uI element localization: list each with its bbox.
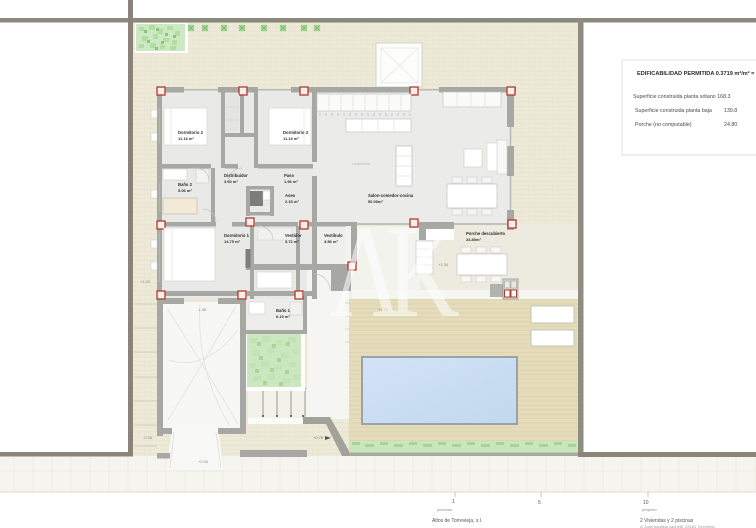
svg-text:-0.08: -0.08 <box>143 435 153 440</box>
svg-text:14.75 m²: 14.75 m² <box>224 239 241 244</box>
svg-text:11.16 m²: 11.16 m² <box>283 136 299 141</box>
svg-text:Altos de Torrevieja, s.l.: Altos de Torrevieja, s.l. <box>432 518 482 524</box>
svg-text:Aseo: Aseo <box>285 193 296 198</box>
svg-text:139.8: 139.8 <box>724 108 737 114</box>
svg-text:Superficie construida planta b: Superficie construida planta baja <box>635 108 712 114</box>
svg-text:Superficie construida planta s: Superficie construida planta sótano 168.… <box>633 94 731 100</box>
svg-text:Dormitorio 1: Dormitorio 1 <box>224 233 250 238</box>
svg-text:EDIFICABILIDAD PERMITIDA 0.371: EDIFICABILIDAD PERMITIDA 0.3719 m²/m² = <box>637 70 755 77</box>
svg-text:promotor: promotor <box>437 508 453 512</box>
svg-text:6.19 m²: 6.19 m² <box>276 314 290 319</box>
svg-text:10: 10 <box>643 500 649 506</box>
svg-text:Baño 1: Baño 1 <box>276 308 291 313</box>
svg-text:1: 1 <box>452 499 455 505</box>
svg-text:Dormitorio 3: Dormitorio 3 <box>283 130 309 135</box>
svg-text:proyecto: proyecto <box>642 508 657 512</box>
svg-text:3.72 m²: 3.72 m² <box>285 239 299 244</box>
svg-text:+0.76: +0.76 <box>313 435 324 440</box>
svg-text:K: K <box>387 198 460 345</box>
svg-text:1.96 m²: 1.96 m² <box>284 179 298 184</box>
svg-text:Baño 2: Baño 2 <box>178 182 193 187</box>
svg-text:Vestidor: Vestidor <box>285 233 302 238</box>
svg-text:-1.38: -1.38 <box>197 307 207 312</box>
svg-text:24.80m²: 24.80m² <box>466 237 482 242</box>
svg-text:+0.00: +0.00 <box>198 459 209 464</box>
svg-text:Distribuidor: Distribuidor <box>224 173 248 178</box>
svg-text:Porche (no computable): Porche (no computable) <box>635 122 692 128</box>
svg-text:Paso: Paso <box>284 173 294 178</box>
svg-text:Dormitorio 2: Dormitorio 2 <box>178 130 204 135</box>
svg-text:c/ Juan bautista sachetti, 031: c/ Juan bautista sachetti, 03181 Torrevi… <box>640 524 715 528</box>
svg-text:5: 5 <box>538 500 541 506</box>
svg-text:Lavanderia: Lavanderia <box>352 162 370 166</box>
svg-text:11.16 m²: 11.16 m² <box>178 136 194 141</box>
svg-text:5.06 m²: 5.06 m² <box>178 188 192 193</box>
svg-text:3.60 m²: 3.60 m² <box>224 179 238 184</box>
svg-text:Porche descubierto: Porche descubierto <box>466 231 506 236</box>
svg-text:+1.20: +1.20 <box>140 279 151 284</box>
svg-text:24.80: 24.80 <box>724 122 737 128</box>
svg-text:2.15 m²: 2.15 m² <box>285 199 299 204</box>
